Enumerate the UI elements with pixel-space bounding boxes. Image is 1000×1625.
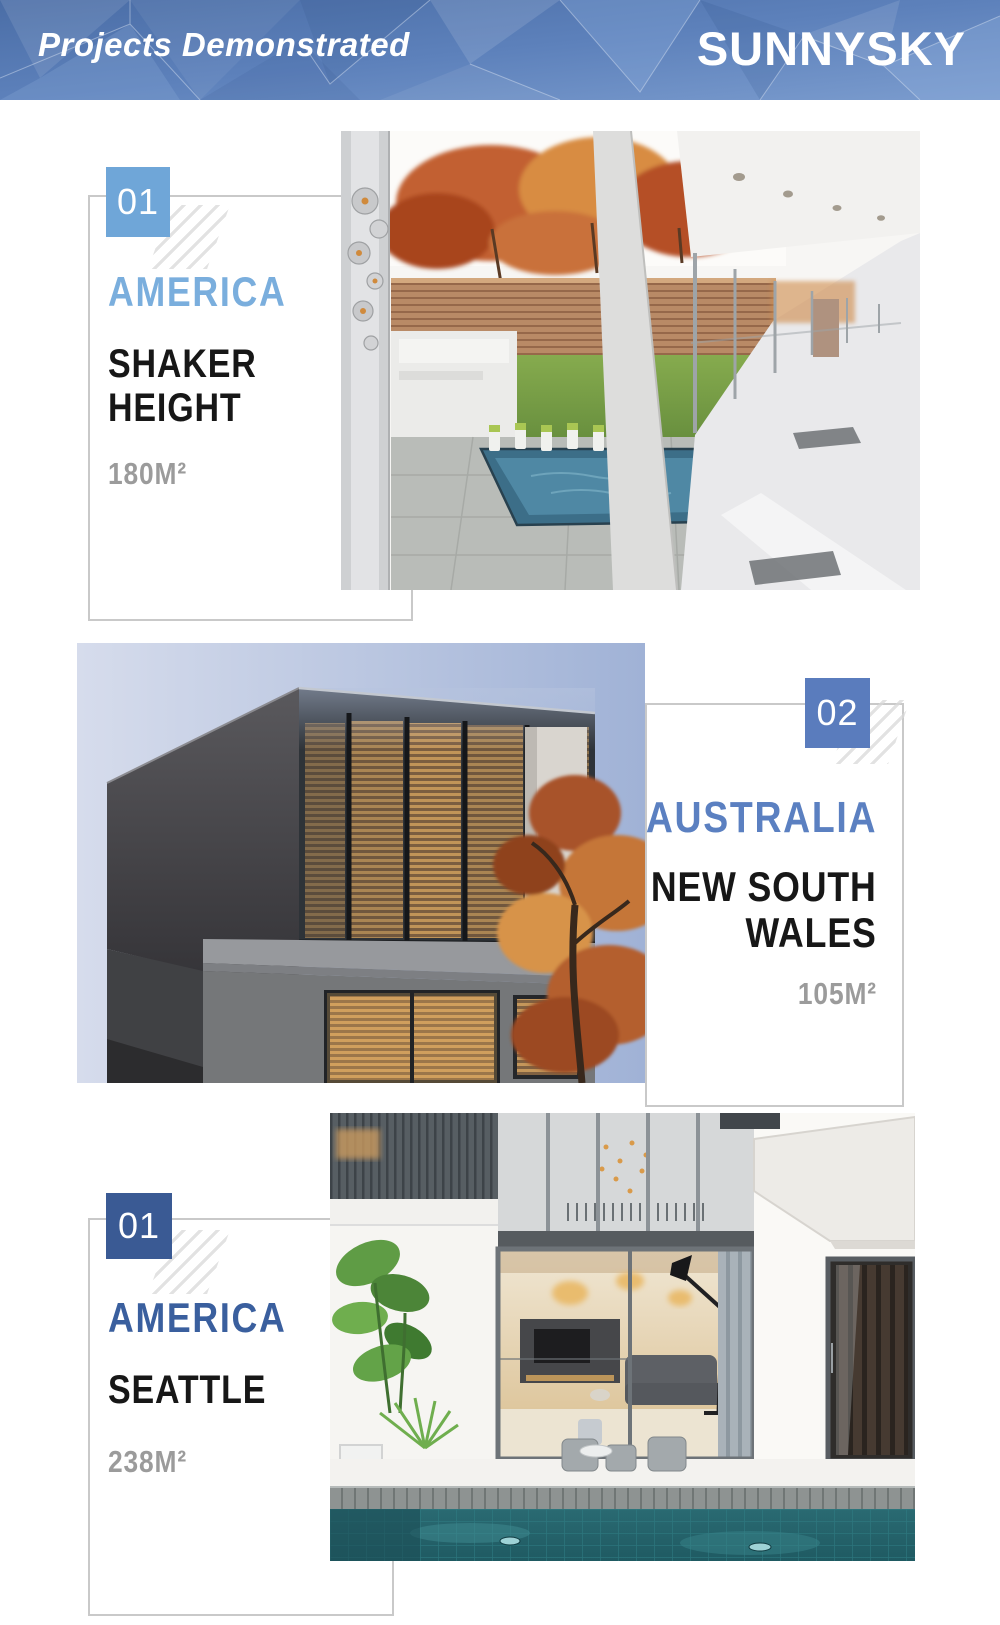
brochure-page: Projects Demonstrated SUNNYSKY	[0, 0, 1000, 1625]
balcony-rail	[560, 1203, 710, 1221]
project-country: AUSTRALIA	[646, 793, 877, 843]
dusk-concrete-house-scene	[77, 643, 645, 1083]
project-name: SEATTLE	[108, 1368, 266, 1412]
project-number-badge: 02	[805, 678, 870, 748]
gray-curtain	[718, 1249, 754, 1459]
project-name-line: SEATTLE	[108, 1368, 266, 1412]
project-area: 238M²	[108, 1444, 187, 1480]
photo-shaker-height	[341, 131, 920, 590]
project-area: 105M²	[798, 976, 877, 1012]
upper-glass-mezzanine	[498, 1113, 754, 1249]
pool-coping	[330, 1487, 915, 1509]
project-name-line: HEIGHT	[108, 386, 257, 430]
living-room-interior	[498, 1249, 754, 1459]
project-number-badge: 01	[106, 167, 170, 237]
project-country: AMERICA	[108, 268, 287, 316]
header-banner: Projects Demonstrated SUNNYSKY	[0, 0, 1000, 100]
white-villa-pool-scene	[330, 1113, 915, 1561]
page-title: Projects Demonstrated	[38, 26, 410, 64]
photo-seattle	[330, 1113, 915, 1561]
autumn-glass-house-scene	[341, 131, 920, 590]
project-number-badge: 01	[106, 1193, 172, 1259]
sliding-glass-door	[828, 1259, 915, 1461]
project-name-line: NEW SOUTH	[651, 864, 877, 910]
brand-logo: SUNNYSKY	[697, 21, 966, 76]
project-name: SHAKER HEIGHT	[108, 342, 257, 430]
photo-new-south-wales	[77, 643, 645, 1083]
project-name-line: WALES	[651, 910, 877, 956]
tv	[534, 1329, 590, 1363]
project-name: NEW SOUTH WALES	[651, 864, 877, 956]
project-country: AMERICA	[108, 1294, 287, 1342]
pool-water	[330, 1509, 915, 1561]
project-area: 180M²	[108, 456, 187, 492]
glass-door	[327, 993, 497, 1083]
project-name-line: SHAKER	[108, 342, 257, 386]
